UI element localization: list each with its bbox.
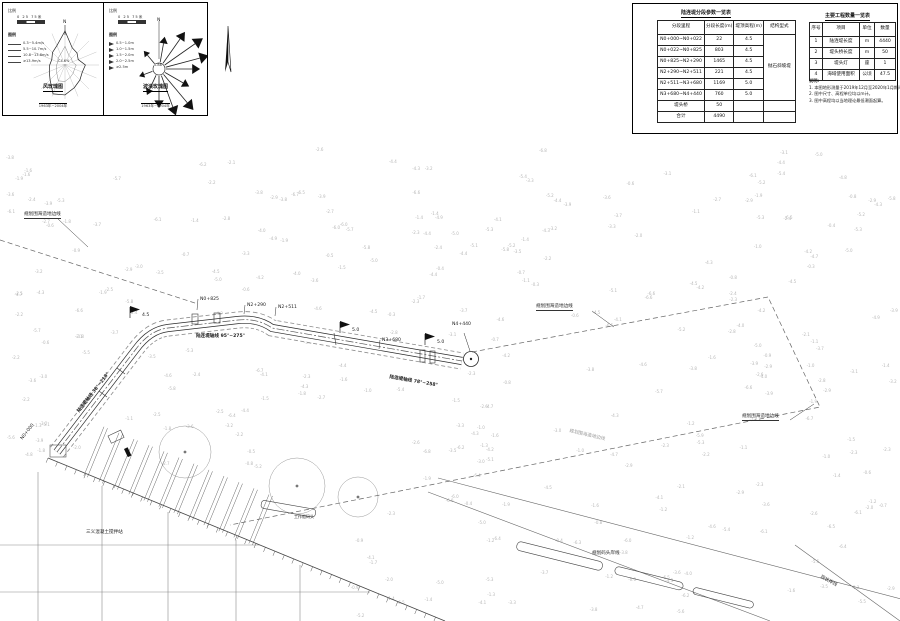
center-value: 0.88	[154, 64, 162, 68]
north-label: N	[157, 19, 160, 24]
causeway	[57, 320, 462, 452]
planned-wharf-lines	[108, 430, 900, 621]
boundary-leader-label: 规划围海造地边线	[536, 303, 573, 311]
planned-wharf-label: 规划码头岸线	[592, 550, 620, 556]
mixing-plant-label: 三义混凝土搅拌站	[86, 529, 123, 535]
segment-table-title: 陆连堤分段参数一览表	[681, 9, 731, 18]
notes-block: 说明: 1. 本图地形测量于2019年12月至2020年1月期间测绘。2. 图中…	[809, 78, 895, 105]
chainage-label: N2+290	[247, 303, 266, 308]
scale-values: 0 25 75米	[118, 16, 146, 20]
drawing-sheet: -2.3-6.1-4.7-5.0-3.2-2.9-4.5-2.5-4.1-0.8…	[0, 0, 900, 621]
quantity-table-title: 主要工程数量一览表	[825, 12, 870, 21]
wind-rose-caption-wrap: 风玫瑰图 1963年~2004年	[3, 73, 103, 111]
shoreline-revetment	[46, 458, 445, 621]
land-parcel-grid	[0, 472, 370, 621]
crest-elevation-label: 5.0	[437, 340, 444, 345]
chainage-label: N2+511	[278, 305, 297, 310]
storage-tanks	[159, 426, 378, 517]
notes-title: 说明:	[809, 78, 895, 85]
legend-label: 图例	[8, 33, 16, 37]
north-label: N	[63, 21, 66, 26]
wind-rose-caption: 风玫瑰图	[43, 83, 63, 92]
wind-rose-period: 1963年~2004年	[39, 103, 68, 110]
leader-lines	[58, 219, 814, 420]
axis-bearing-label: 陆连堤轴线 95°~275°	[196, 333, 245, 339]
segment-table: 分段里程分段长度(m)堤顶高程(m)结构型式N0+000~N0+022224.5…	[657, 20, 796, 123]
calm-value: C4.6%	[58, 60, 69, 64]
chainage-label: N3+680	[382, 338, 401, 343]
crest-elevation-label: 5.0	[352, 328, 359, 333]
chainage-label: N0+825	[200, 297, 219, 302]
work-wharf-label: 工作船码头	[294, 514, 314, 520]
wind-rose-panel: 比例 0 25 75米 图例 0.3~5.4m/s5.5~10.7m/s10.8…	[2, 2, 104, 116]
wave-rose-caption: 波浪玫瑰图	[143, 83, 168, 92]
quantity-table: 序号项目单位数量1陆连堤长度m44402堤头桥长度m503堤头灯座14海域使用面…	[809, 22, 896, 81]
wave-rose-period: 1963年~2004年	[141, 103, 170, 110]
scale-label: 比例	[8, 9, 16, 13]
legend-label: 图例	[109, 33, 117, 37]
tables-box: 陆连堤分段参数一览表 分段里程分段长度(m)堤顶高程(m)结构型式N0+000~…	[632, 3, 898, 134]
wave-rose-panel: 比例 0 25 75米 图例 0.5~1.0m1.0~1.5m1.5~2.0m2…	[103, 2, 208, 116]
boundary-leader-label: 规划围海造地边线	[742, 413, 779, 421]
boundary-leader-label: 规划围海造地边线	[24, 211, 61, 219]
scale-bar	[17, 20, 45, 24]
north-arrow-icon	[225, 26, 231, 72]
wave-rose-caption-wrap: 波浪玫瑰图 1963年~2004年	[104, 73, 207, 111]
scale-values: 0 25 75米	[17, 16, 45, 20]
scale-bar	[118, 20, 146, 24]
scale-label: 比例	[109, 9, 117, 13]
wave-legend: 0.5~1.0m1.0~1.5m1.5~2.0m2.0~2.5m≥2.5m	[109, 41, 134, 71]
chainage-label: N4+440	[452, 322, 471, 327]
wind-legend: 0.3~5.4m/s5.5~10.7m/s10.8~13.8m/s≥13.9m/…	[8, 41, 49, 65]
causeway-head	[464, 333, 479, 367]
crest-elevation-label: 4.5	[142, 313, 149, 318]
existing-finger-piers	[84, 427, 273, 545]
